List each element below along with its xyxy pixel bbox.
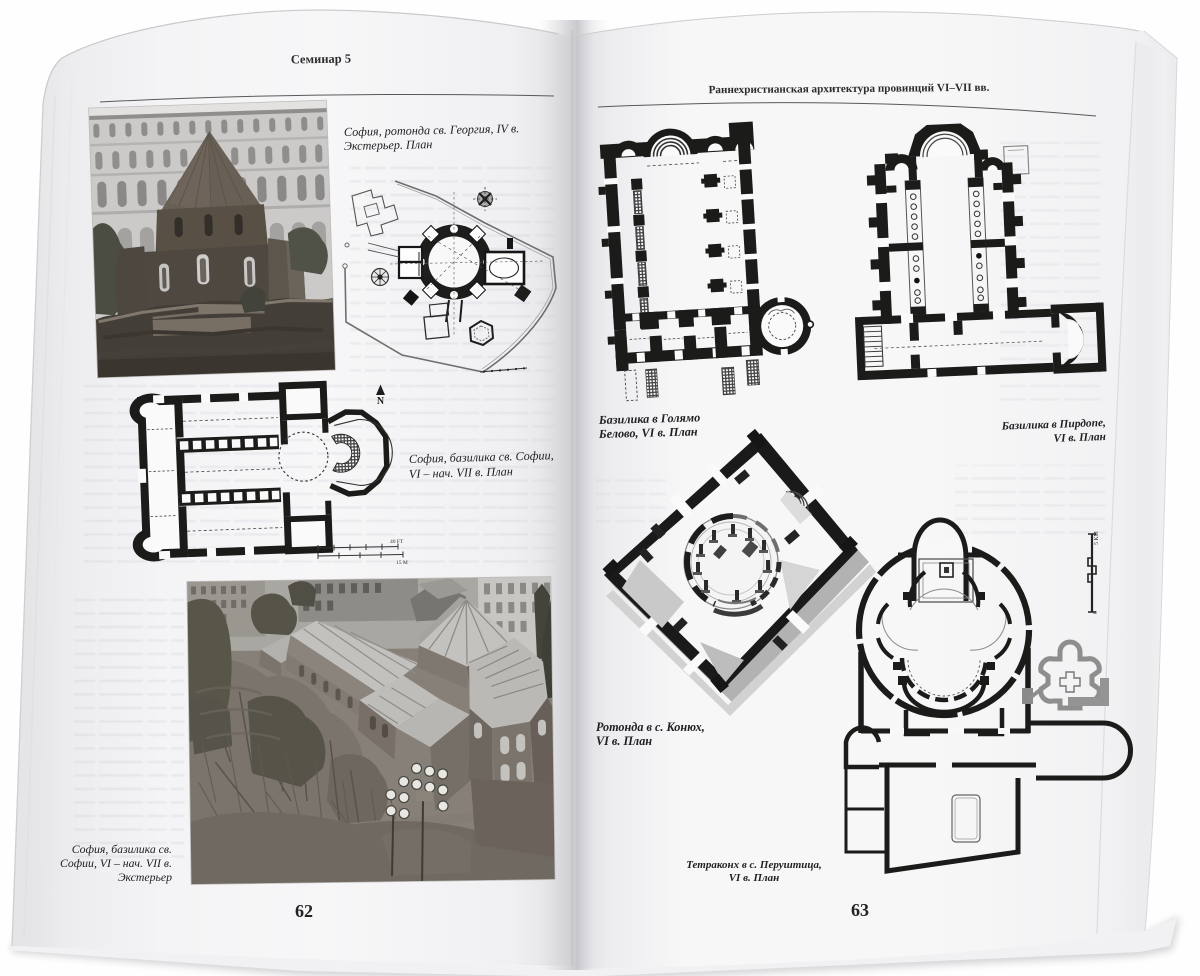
svg-text:Софии, VI – нач. VII в.: Софии, VI – нач. VII в.: [60, 856, 172, 870]
svg-text:62: 62: [295, 901, 313, 921]
svg-text:VI в. План: VI в. План: [1053, 431, 1106, 445]
svg-text:Экстерьер. План: Экстерьер. План: [344, 137, 433, 153]
svg-text:София, базилика св.: София, базилика св.: [72, 842, 172, 856]
svg-text:VI – нач. VII в. План: VI – нач. VII в. План: [409, 464, 513, 481]
svg-text:0: 0: [1093, 611, 1099, 614]
svg-text:15 M: 15 M: [396, 560, 408, 566]
svg-text:VI в. План: VI в. План: [596, 734, 652, 748]
svg-text:5 КМ: 5 КМ: [1094, 530, 1100, 545]
svg-text:Ротонда в с. Конюх,: Ротонда в с. Конюх,: [596, 720, 705, 734]
svg-text:Тетраконх в с. Перуштица,: Тетраконх в с. Перуштица,: [686, 859, 822, 871]
svg-text:63: 63: [851, 900, 869, 920]
svg-text:40 FT: 40 FT: [390, 539, 404, 545]
svg-text:Белово, VI в. План: Белово, VI в. План: [598, 424, 698, 441]
svg-text:Экстерьер: Экстерьер: [118, 870, 172, 884]
svg-text:Семинар 5: Семинар 5: [291, 51, 351, 66]
svg-text:N: N: [377, 396, 385, 407]
svg-text:VI в. План: VI в. План: [729, 872, 780, 884]
svg-text:Раннехристианская архитектура: Раннехристианская архитектура провинций …: [709, 82, 990, 96]
